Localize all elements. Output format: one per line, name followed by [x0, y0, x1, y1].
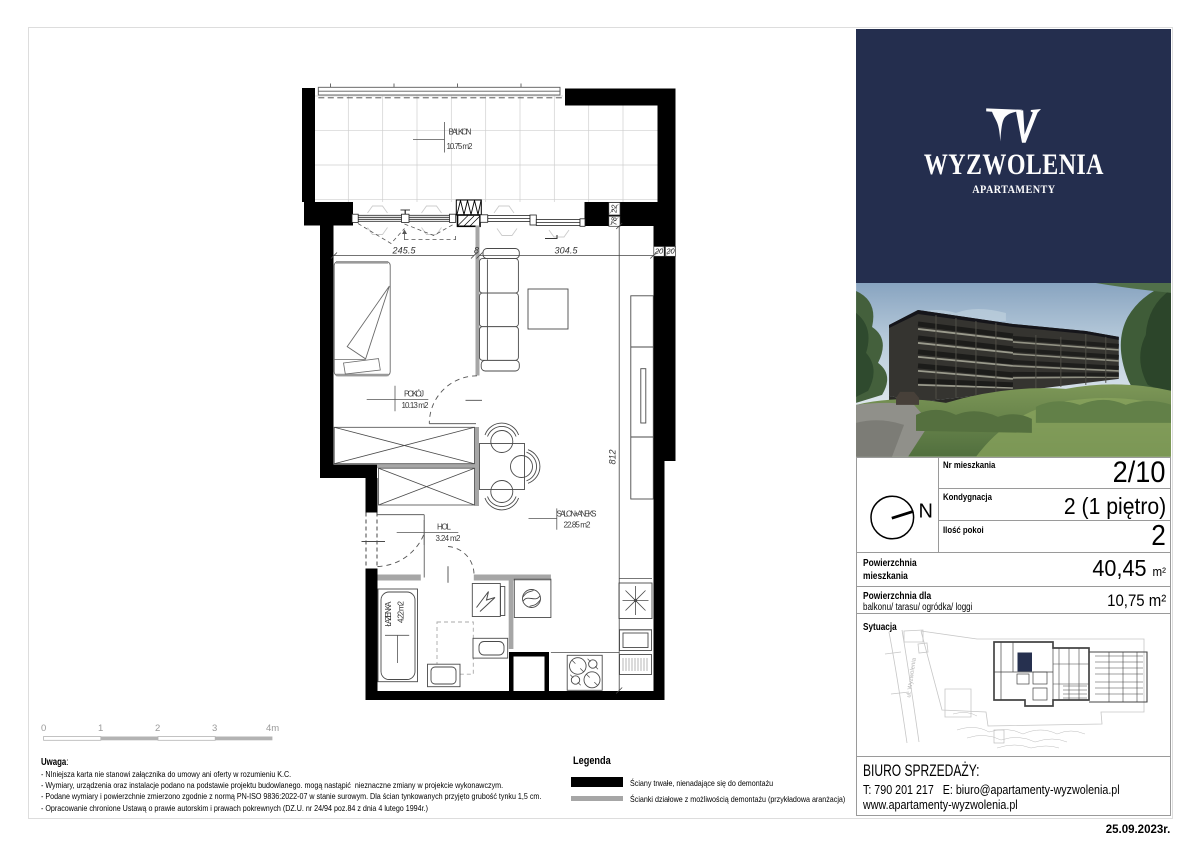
svg-text:3: 3 — [212, 723, 217, 734]
svg-text:ŁAZIENKA: ŁAZIENKA — [384, 601, 393, 627]
svg-text:4m: 4m — [266, 723, 279, 734]
svg-text:20: 20 — [654, 247, 664, 256]
svg-text:SALON+ANEKS: SALON+ANEKS — [557, 510, 597, 519]
svg-text:10.13 m2: 10.13 m2 — [402, 401, 430, 410]
svg-text:3.24 m2: 3.24 m2 — [436, 534, 462, 543]
svg-text:4.22 m2: 4.22 m2 — [397, 600, 406, 623]
svg-text:812: 812 — [608, 449, 618, 464]
svg-text:HOL: HOL — [437, 523, 452, 532]
svg-text:304.5: 304.5 — [555, 246, 579, 256]
svg-text:POKÓJ: POKÓJ — [404, 390, 424, 399]
svg-text:78: 78 — [609, 216, 618, 225]
svg-text:ul. Wyzwolenia: ul. Wyzwolenia — [906, 657, 918, 698]
svg-text:BALKON: BALKON — [449, 128, 472, 137]
svg-text:N: N — [918, 501, 932, 523]
svg-text:22: 22 — [609, 204, 618, 214]
svg-text:22.85 m2: 22.85 m2 — [564, 521, 592, 530]
svg-text:20: 20 — [665, 247, 675, 256]
svg-text:8: 8 — [474, 246, 479, 256]
svg-text:0: 0 — [41, 723, 46, 734]
svg-text:10.75 m2: 10.75 m2 — [447, 142, 474, 151]
svg-text:1: 1 — [98, 723, 103, 734]
svg-text:2: 2 — [155, 723, 160, 734]
svg-text:245.5: 245.5 — [392, 246, 417, 256]
